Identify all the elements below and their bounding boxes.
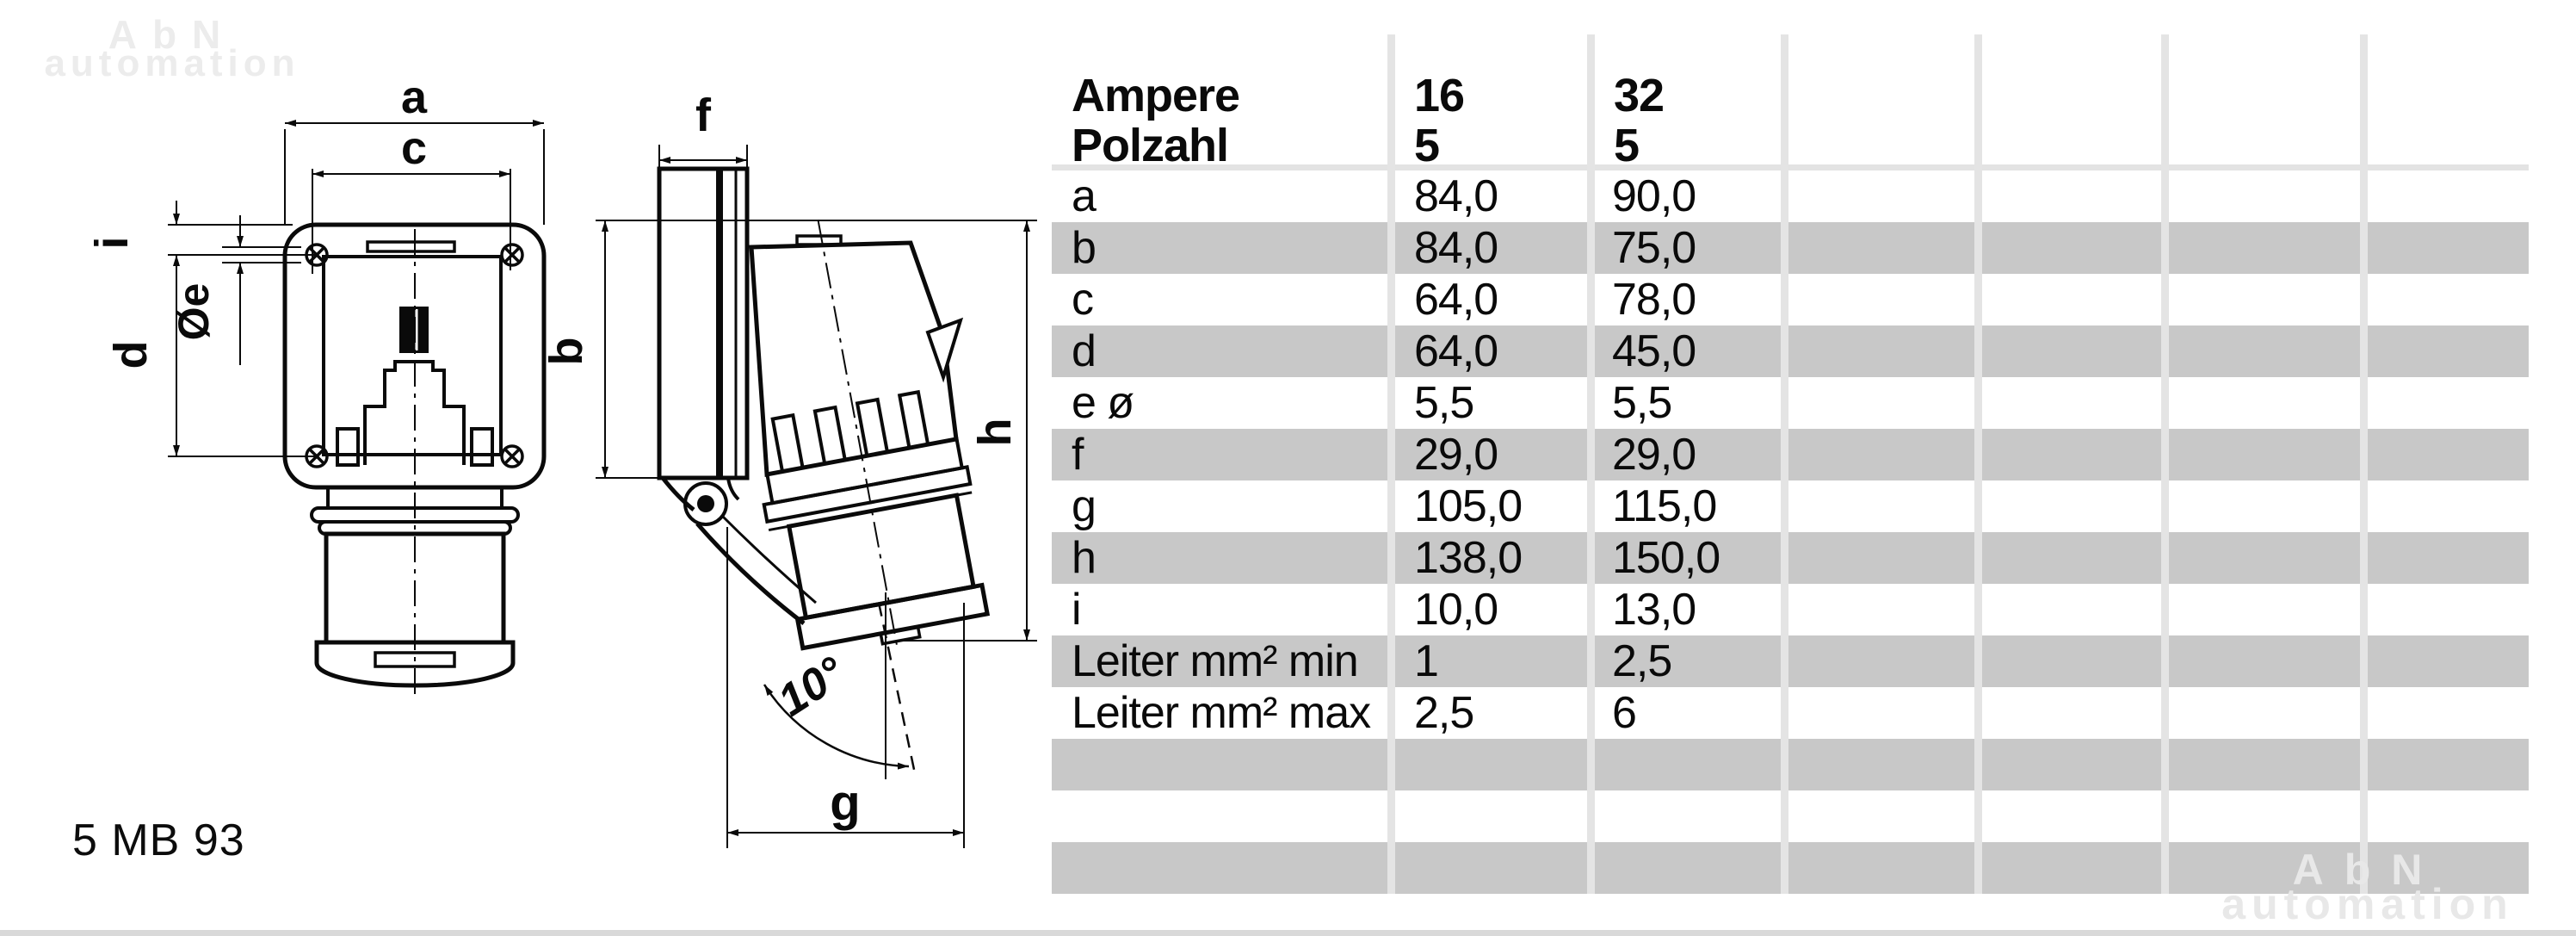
header-ampere-16: 16 xyxy=(1414,71,1464,121)
watermark-brand-sub: automation xyxy=(2216,887,2519,921)
value-32a: 6 xyxy=(1587,687,1781,739)
label-c: c xyxy=(401,122,427,174)
column-line-6 xyxy=(2360,34,2368,894)
table-row xyxy=(1052,739,2529,790)
row-label: Leiter mm² max xyxy=(1052,687,1387,739)
header-ampere-32: 32 xyxy=(1614,71,1664,121)
value-32a: 5,5 xyxy=(1587,377,1781,429)
value-16a: 1 xyxy=(1387,635,1587,687)
column-line-3 xyxy=(1781,34,1788,894)
row-label: c xyxy=(1052,274,1387,325)
header-polzahl: Polzahl xyxy=(1072,121,1239,170)
value-32a: 75,0 xyxy=(1587,222,1781,274)
table-row: f29,029,0 xyxy=(1052,429,2529,480)
part-number: 5 MB 93 xyxy=(72,815,245,866)
table-row xyxy=(1052,790,2529,842)
value-16a: 5,5 xyxy=(1387,377,1587,429)
row-label: f xyxy=(1052,429,1387,480)
label-i: i xyxy=(86,236,138,249)
row-label: Leiter mm² min xyxy=(1052,635,1387,687)
row-label: e ø xyxy=(1052,377,1387,429)
table-row: d64,045,0 xyxy=(1052,325,2529,377)
label-angle: 10° xyxy=(769,647,855,726)
watermark-bottom-right: AbN automation xyxy=(2216,852,2519,921)
table-row: i10,013,0 xyxy=(1052,584,2529,635)
row-label: a xyxy=(1052,170,1387,222)
label-d: d xyxy=(105,341,157,369)
row-label xyxy=(1052,790,1387,842)
value-32a: 13,0 xyxy=(1587,584,1781,635)
table-row: b84,075,0 xyxy=(1052,222,2529,274)
label-b: b xyxy=(541,338,592,366)
value-32a: 90,0 xyxy=(1587,170,1781,222)
table-rows: a84,090,0b84,075,0c64,078,0d64,045,0e ø5… xyxy=(1052,170,2529,894)
value-16a: 105,0 xyxy=(1387,480,1587,532)
value-16a: 84,0 xyxy=(1387,222,1587,274)
label-g: g xyxy=(830,775,860,831)
column-line-4 xyxy=(1974,34,1982,894)
table-row: e ø5,55,5 xyxy=(1052,377,2529,429)
value-32a: 29,0 xyxy=(1587,429,1781,480)
front-view xyxy=(285,225,544,697)
value-16a: 10,0 xyxy=(1387,584,1587,635)
front-inner-face xyxy=(324,257,501,455)
side-view xyxy=(596,169,1037,667)
label-a: a xyxy=(401,71,428,123)
front-top-tab xyxy=(368,242,454,251)
row-label xyxy=(1052,842,1387,894)
table-row: a84,090,0 xyxy=(1052,170,2529,222)
value-16a xyxy=(1387,790,1587,842)
row-label: g xyxy=(1052,480,1387,532)
value-16a: 84,0 xyxy=(1387,170,1587,222)
spec-table: Ampere Polzahl 16 5 32 5 a84,090,0b84,07… xyxy=(1052,0,2529,936)
header-rule xyxy=(1052,164,2529,170)
value-16a xyxy=(1387,842,1587,894)
value-16a: 138,0 xyxy=(1387,532,1587,584)
value-16a: 64,0 xyxy=(1387,325,1587,377)
row-label: d xyxy=(1052,325,1387,377)
front-prong-right xyxy=(472,429,492,465)
table-row: Leiter mm² max2,56 xyxy=(1052,687,2529,739)
table-header-labels: Ampere Polzahl xyxy=(1072,71,1239,170)
side-housing-tab xyxy=(797,236,841,245)
row-label: h xyxy=(1052,532,1387,584)
table-header-col16: 16 5 xyxy=(1414,71,1464,170)
value-16a: 64,0 xyxy=(1387,274,1587,325)
label-f: f xyxy=(695,90,712,141)
value-16a xyxy=(1387,739,1587,790)
technical-drawing: a c i Øe d b f h g 10° xyxy=(0,0,1084,936)
column-line-5 xyxy=(2161,34,2169,894)
value-32a: 78,0 xyxy=(1587,274,1781,325)
row-label: i xyxy=(1052,584,1387,635)
watermark-top-left: AbN automation xyxy=(22,19,323,77)
row-label: b xyxy=(1052,222,1387,274)
value-32a: 2,5 xyxy=(1587,635,1781,687)
value-32a: 115,0 xyxy=(1587,480,1781,532)
datasheet-page: { "watermark": { "line1": "AbN", "line2"… xyxy=(0,0,2576,936)
front-dimensions xyxy=(168,123,544,456)
header-ampere: Ampere xyxy=(1072,71,1239,121)
value-32a xyxy=(1587,790,1781,842)
bottom-rule xyxy=(0,930,2576,936)
table-row: Leiter mm² min12,5 xyxy=(1052,635,2529,687)
label-h: h xyxy=(969,418,1021,447)
label-diameter-e: Øe xyxy=(170,283,218,341)
side-wall-plate xyxy=(659,169,747,478)
value-32a: 45,0 xyxy=(1587,325,1781,377)
watermark-brand-sub: automation xyxy=(22,50,323,77)
row-label xyxy=(1052,739,1387,790)
value-32a: 150,0 xyxy=(1587,532,1781,584)
side-gland xyxy=(928,320,961,377)
table-row: h138,0150,0 xyxy=(1052,532,2529,584)
header-polzahl-16: 5 xyxy=(1414,121,1464,170)
front-prong-left xyxy=(337,429,358,465)
table-row: c64,078,0 xyxy=(1052,274,2529,325)
table-header-col32: 32 5 xyxy=(1614,71,1664,170)
value-16a: 29,0 xyxy=(1387,429,1587,480)
table-row: g105,0115,0 xyxy=(1052,480,2529,532)
value-16a: 2,5 xyxy=(1387,687,1587,739)
value-32a xyxy=(1587,842,1781,894)
value-32a xyxy=(1587,739,1781,790)
header-polzahl-32: 5 xyxy=(1614,121,1664,170)
